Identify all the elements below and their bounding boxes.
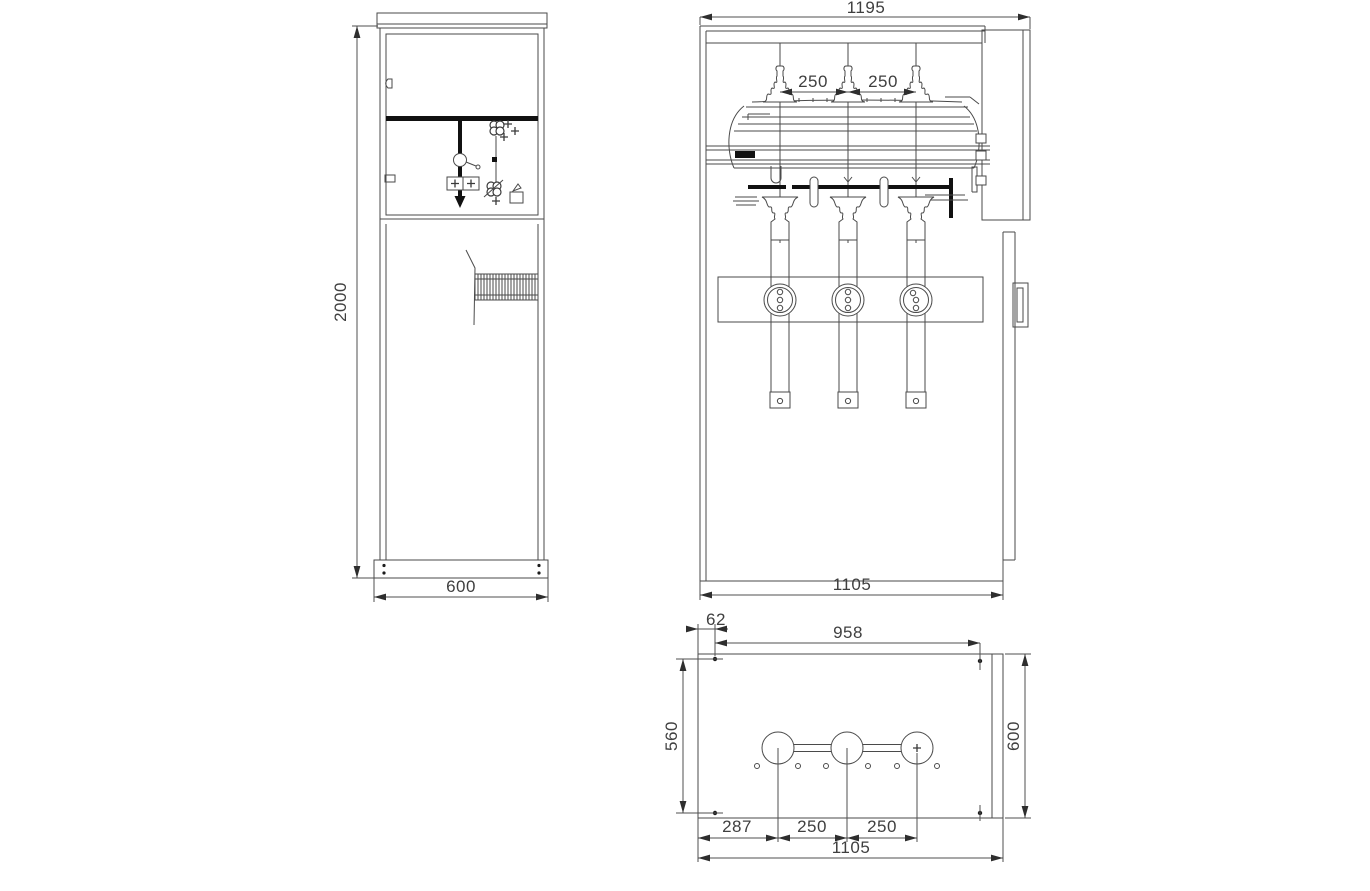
dim-label-287: 287 [722,817,752,836]
bottom-bushings [762,197,934,240]
gauge-symbol-top [490,120,519,141]
dim-width-600: 600 [374,577,548,602]
dim-label-1105-plan: 1105 [832,838,871,857]
rail-clamp [735,151,755,158]
cable-port [764,284,796,316]
switch-symbol [454,154,481,170]
dim-width-1195: 1195 [700,0,1030,29]
bushing-icon [762,197,798,240]
gauge-symbol-bottom [484,180,523,205]
dim-label-62: 62 [706,610,726,629]
cable-port [900,284,932,316]
single-line-schematic [385,79,538,208]
top-bushings [763,66,933,102]
dim-depth-600: 600 [1004,654,1031,818]
dim-height-2000: 2000 [331,26,378,578]
cable-band [718,277,983,322]
dim-hole-span-958: 958 [715,623,980,656]
dim-label-250-plan-right: 250 [867,817,897,836]
leader-line [466,250,475,325]
fuse-symbol [447,177,479,190]
link-tick [492,157,497,162]
bushing-icon [830,197,866,240]
dim-label-250-right: 250 [868,72,898,91]
down-arrow-symbol [455,196,466,208]
mechanism-box [976,30,1030,220]
door-latch-icon [386,79,392,88]
bushing-icon [898,197,934,240]
dim-label-250-plan-left: 250 [797,817,827,836]
dim-label-560: 560 [662,721,681,751]
dim-edge-62: 62 [686,610,728,656]
engineering-drawing-page: 2000 600 [0,0,1370,891]
front-view: 1195 250 250 1105 [700,0,1030,600]
dim-label-1105-front: 1105 [833,575,872,594]
dim-width-1105-front: 1105 [700,560,1003,600]
base-channel [374,560,548,578]
dim-width-1105-plan: 1105 [698,838,1003,861]
dim-label-250-left: 250 [798,72,828,91]
cable-lugs [770,392,926,408]
bushing-icon [899,66,933,102]
dim-label-600: 600 [446,577,476,596]
bushing-icon [831,66,865,102]
vent-grille [466,250,538,325]
bushing-icon [763,66,797,102]
cable-port [832,284,864,316]
dim-label-958: 958 [833,623,863,642]
switchgear-dimension-drawing: 2000 600 [0,0,1370,891]
dim-rows-560: 560 [662,659,723,813]
dim-label-1195: 1195 [847,0,886,17]
dim-label-600-plan: 600 [1004,721,1023,751]
dim-label-2000: 2000 [331,282,350,322]
side-strip [1003,232,1028,581]
plan-view: 62 958 560 600 287 250 250 [662,610,1031,862]
side-view: 2000 600 [331,13,548,602]
busbar-symbol [386,116,538,121]
gland-holes [755,732,940,842]
